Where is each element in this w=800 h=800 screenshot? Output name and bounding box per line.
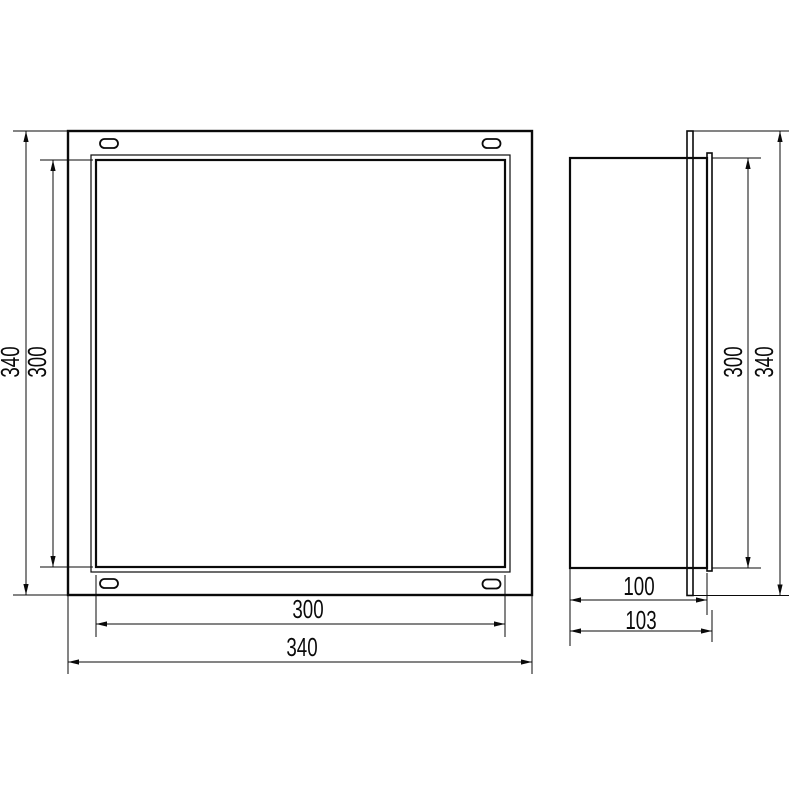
dim-label-front-opening-width: 300: [292, 596, 323, 622]
dim-label-side-outer-height: 340: [751, 346, 777, 377]
technical-drawing-canvas: 340 300 300 340 300 340 100 103: [0, 0, 800, 800]
mounting-slot-bottom-right: [483, 580, 501, 589]
arrowhead: [570, 597, 581, 602]
drawing-linework: [0, 0, 800, 800]
front-opening-rect: [96, 160, 505, 567]
mounting-slot-top-right: [483, 139, 501, 148]
dim-label-side-opening-height: 300: [720, 346, 746, 377]
arrowhead: [521, 659, 532, 664]
arrowhead: [23, 131, 28, 142]
mounting-slot-bottom-left: [100, 579, 118, 588]
arrowhead: [570, 628, 581, 633]
side-view: [570, 131, 712, 596]
arrowhead: [23, 584, 28, 595]
arrowhead: [96, 621, 107, 626]
mounting-slot-top-left: [100, 139, 118, 148]
arrowhead: [701, 628, 712, 633]
arrowhead: [696, 597, 707, 602]
dim-label-front-opening-height: 300: [24, 346, 50, 377]
front-view: [68, 131, 532, 595]
arrowhead: [745, 557, 750, 568]
dim-label-side-depth: 100: [623, 573, 654, 599]
arrowhead: [50, 160, 55, 171]
arrowhead: [68, 659, 79, 664]
front-outer-plate-rect: [68, 131, 532, 595]
arrowhead: [777, 131, 782, 142]
dim-label-front-outer-height: 340: [0, 346, 23, 377]
arrowhead: [745, 158, 750, 169]
side-front-plate-rect: [707, 153, 712, 571]
front-frame-edge-rect: [91, 155, 510, 572]
side-flange-plate-rect: [687, 131, 693, 596]
dim-label-front-outer-width: 340: [286, 634, 317, 660]
dim-label-side-total-depth: 103: [625, 607, 656, 633]
arrowhead: [777, 585, 782, 596]
arrowhead: [494, 621, 505, 626]
arrowhead: [50, 556, 55, 567]
